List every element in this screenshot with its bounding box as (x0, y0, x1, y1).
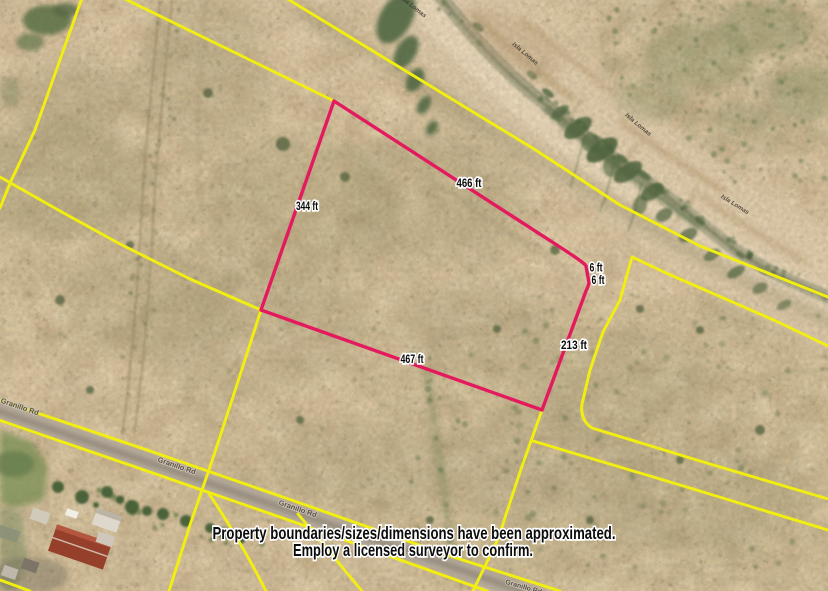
svg-text:6 ft: 6 ft (592, 275, 605, 287)
svg-text:467 ft: 467 ft (401, 354, 424, 366)
svg-text:466 ft: 466 ft (457, 178, 482, 190)
svg-text:6 ft: 6 ft (590, 263, 603, 275)
svg-text:Employ a licensed surveyor to: Employ a licensed surveyor to confirm. (293, 540, 533, 560)
svg-text:213 ft: 213 ft (561, 340, 587, 352)
svg-text:344 ft: 344 ft (296, 201, 318, 213)
